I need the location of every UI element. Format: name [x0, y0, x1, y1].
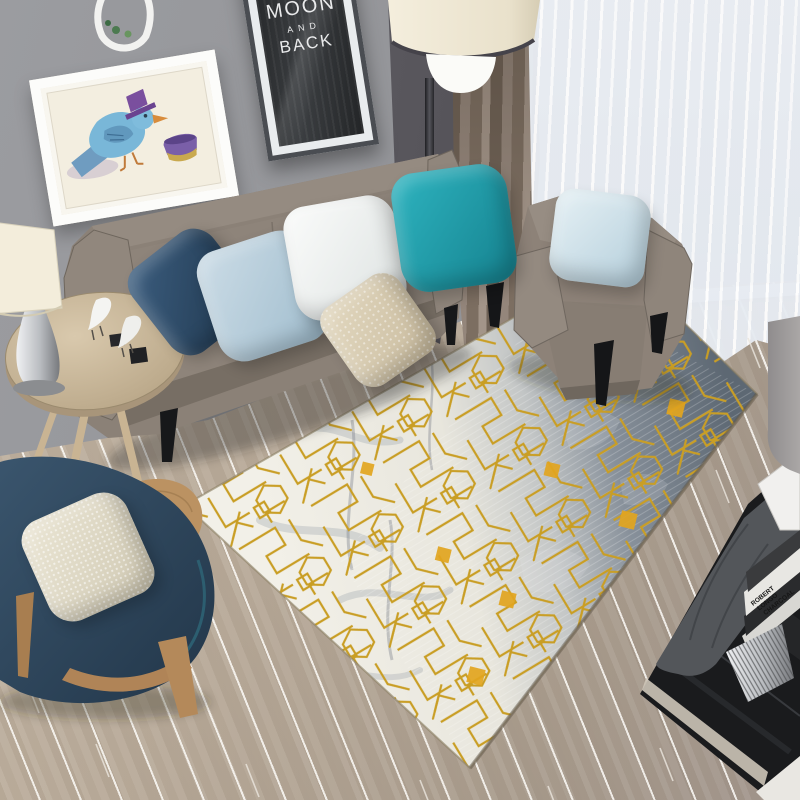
armchair-leg	[486, 282, 504, 328]
sofa-leg	[444, 304, 458, 345]
armchair-pillow	[547, 186, 653, 289]
table-lamp-shade	[0, 222, 62, 314]
living-room-photo: YOU TO THE MOON AND BACK	[0, 0, 800, 800]
scene-graphics: ROBERT LONGO CHARCOAL	[0, 0, 800, 800]
right-edge-furniture	[768, 316, 800, 474]
lamp-diffuser	[426, 54, 496, 93]
pillow-teal	[388, 161, 520, 296]
